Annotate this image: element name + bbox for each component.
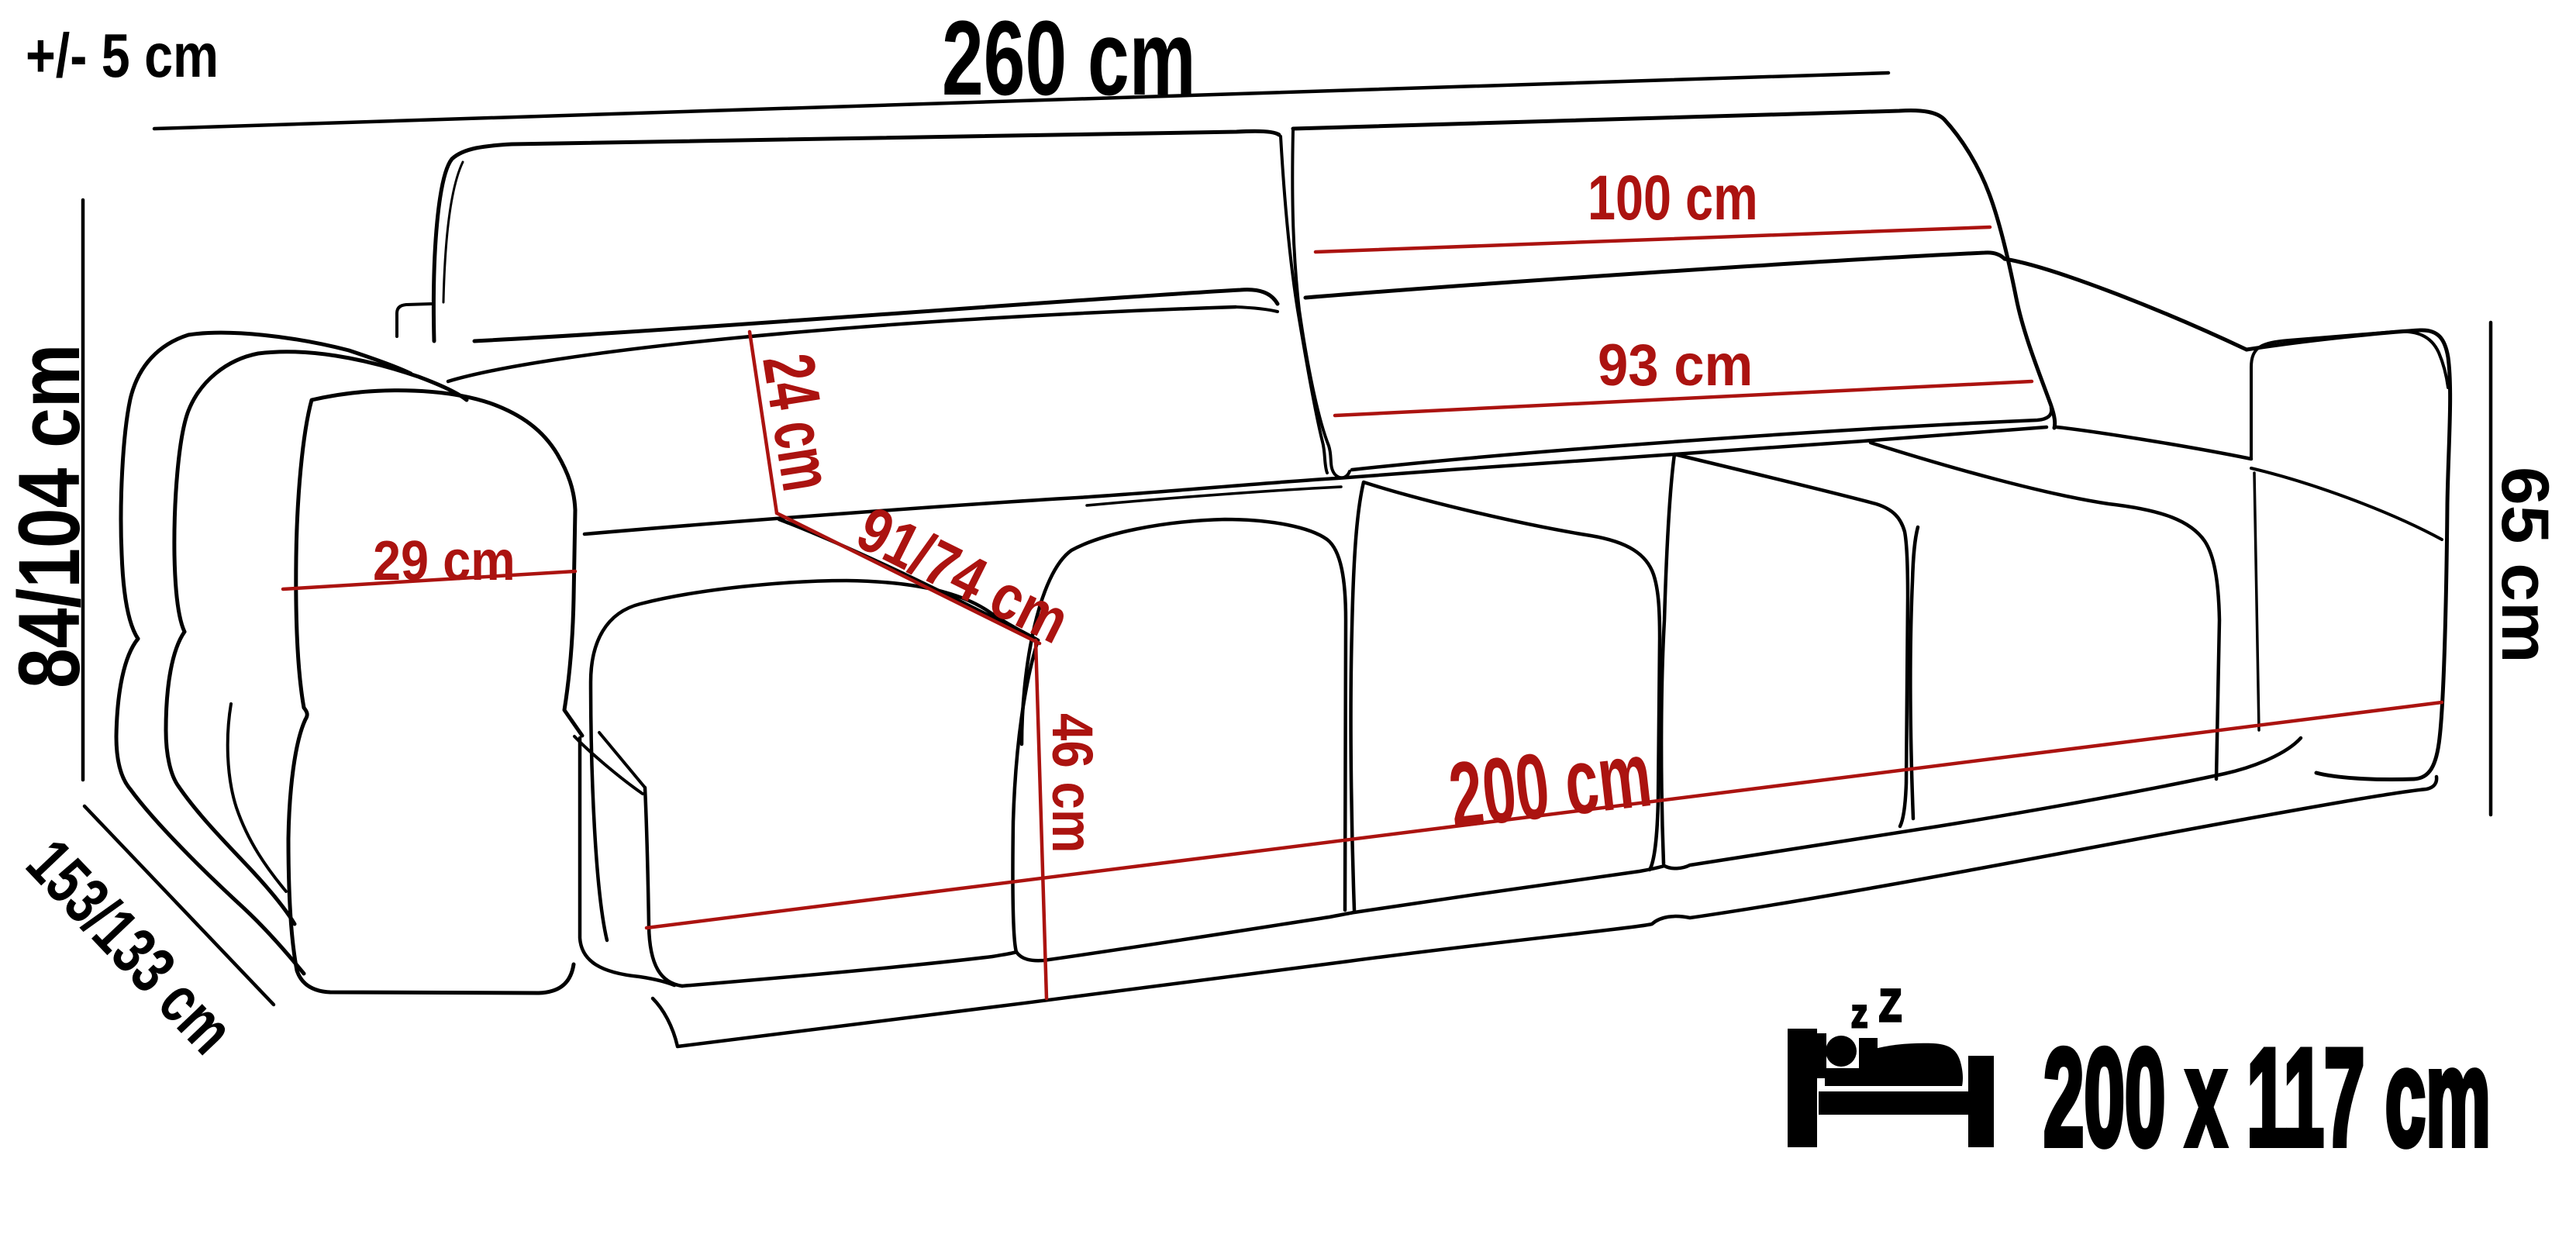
svg-text:46 cm: 46 cm <box>1040 713 1105 853</box>
svg-text:200 x 117 cm: 200 x 117 cm <box>2043 1021 2491 1175</box>
svg-text:+/- 5 cm: +/- 5 cm <box>26 20 219 90</box>
svg-text:84/104 cm: 84/104 cm <box>1 344 98 688</box>
svg-text:65 cm: 65 cm <box>2488 467 2562 664</box>
svg-text:260 cm: 260 cm <box>942 0 1196 118</box>
svg-text:Z: Z <box>1879 981 1902 1032</box>
svg-text:93 cm: 93 cm <box>1598 333 1753 398</box>
svg-text:z: z <box>1851 991 1867 1036</box>
svg-text:100 cm: 100 cm <box>1588 162 1758 233</box>
svg-text:29 cm: 29 cm <box>373 529 516 592</box>
